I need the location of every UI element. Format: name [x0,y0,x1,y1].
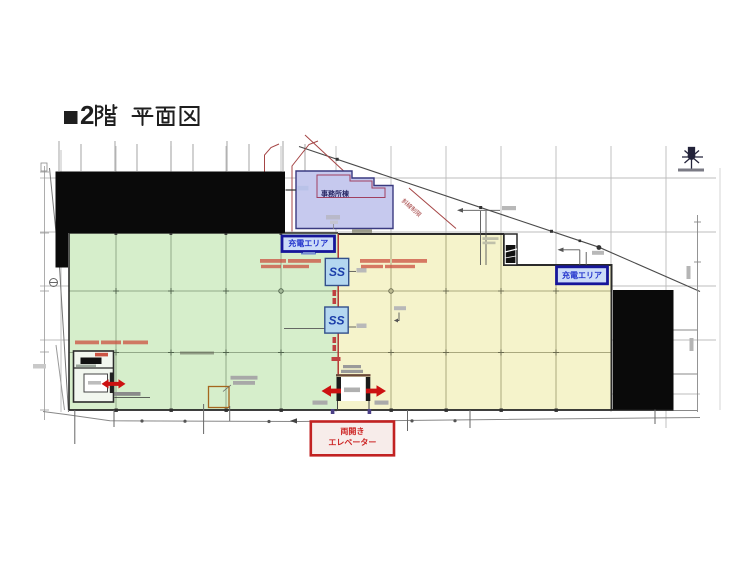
svg-text:2: 2 [80,100,94,130]
svg-text:SS: SS [328,314,344,328]
svg-text:SS: SS [329,265,345,279]
